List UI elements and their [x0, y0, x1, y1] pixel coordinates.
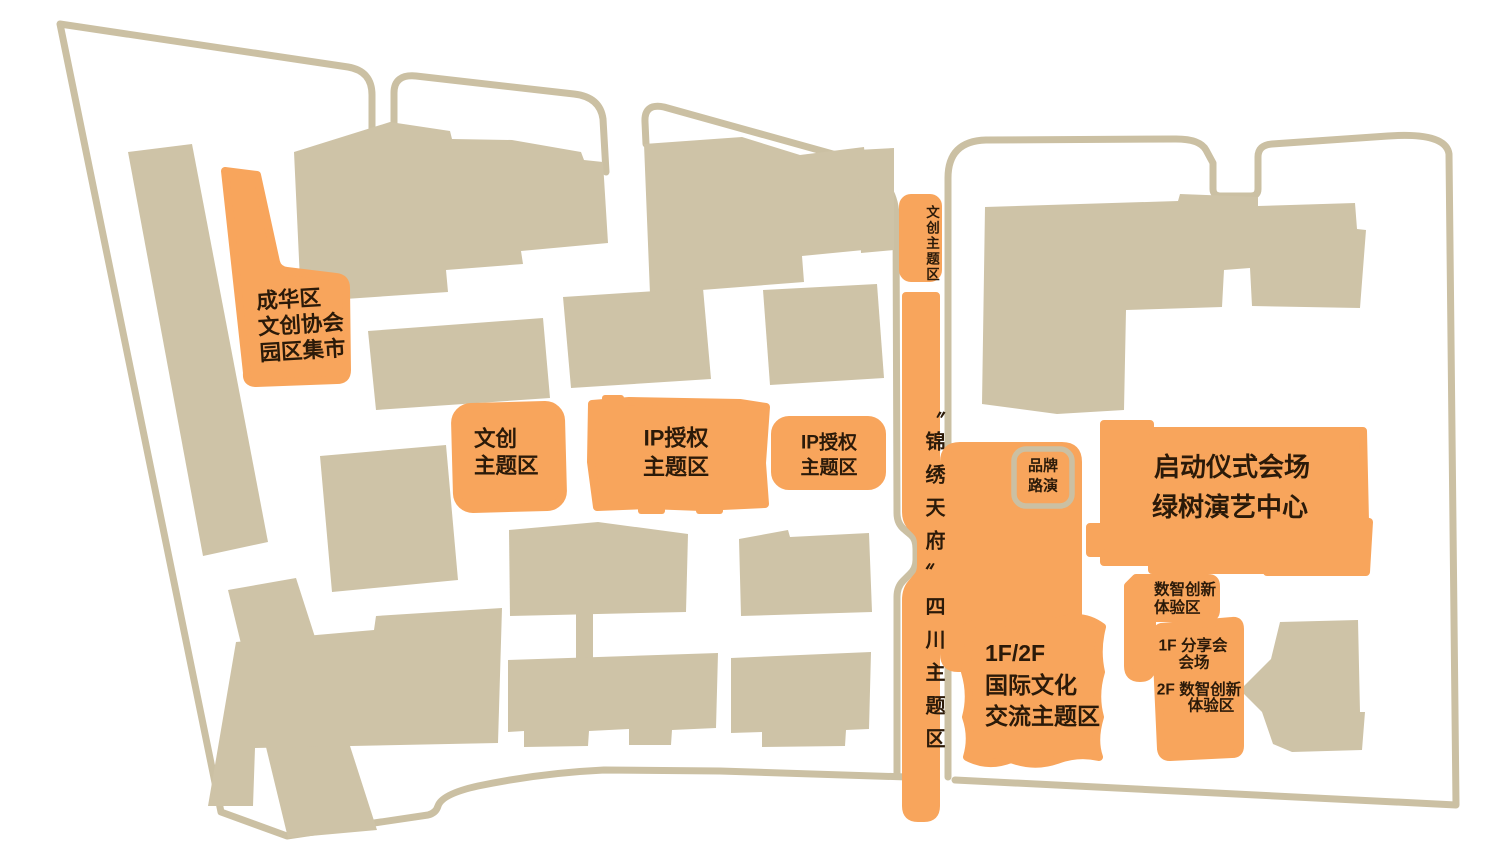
label-brand-roadshow: 品牌	[1028, 457, 1058, 475]
building	[982, 194, 1366, 414]
label-wenchuang-theme: 文创	[474, 426, 517, 451]
label-wenchuang-theme: 主题区	[474, 454, 539, 478]
label-intl-exchange: 交流主题区	[985, 703, 1100, 729]
building	[857, 148, 894, 253]
label-launch-venue: 启动仪式会场	[1154, 452, 1310, 482]
label-sharing-venue: 1F 分享会	[1159, 636, 1228, 655]
label-digital-experience: 体验区	[1154, 598, 1201, 617]
label-ip-license-small: IP授权	[801, 431, 857, 454]
building	[739, 530, 872, 616]
building	[368, 318, 550, 410]
building	[763, 284, 884, 385]
label-sharing-venue: 会场	[1178, 653, 1209, 672]
building	[320, 445, 458, 592]
building	[731, 652, 871, 747]
venue-map: 成华区 文创协会 园区集市 文创 主题区 IP授权 主题区 IP授权 主题区 品…	[0, 0, 1500, 859]
building	[576, 612, 593, 662]
building	[644, 137, 874, 294]
label-launch-venue: 绿树演艺中心	[1152, 492, 1308, 522]
label-intl-exchange: 1F/2F	[985, 640, 1045, 666]
label-brand-roadshow: 路演	[1028, 477, 1058, 495]
label-chenghua-market: 文创协会	[257, 309, 345, 339]
label-ip-license-main: 主题区	[643, 455, 709, 480]
label-digital-experience: 数智创新	[1154, 580, 1217, 599]
label-ip-license-main: IP授权	[644, 426, 710, 451]
zone-ip-license-main-tab	[602, 395, 624, 407]
zone-ip-license-main-tab	[638, 503, 665, 514]
building	[508, 653, 718, 747]
label-chenghua-market: 园区集市	[259, 335, 346, 365]
building	[563, 288, 711, 388]
zone-ip-license-main-tab	[696, 503, 723, 514]
label-intl-exchange: 国际文化	[985, 672, 1077, 698]
label-chenghua-market: 成华区	[256, 285, 322, 314]
map-canvas: 成华区 文创协会 园区集市 文创 主题区 IP授权 主题区 IP授权 主题区 品…	[0, 0, 1500, 859]
label-digital-experience-2f: 2F 数智创新	[1157, 680, 1242, 699]
building	[1240, 620, 1365, 752]
label-digital-experience-2f: 体验区	[1188, 696, 1235, 715]
label-ip-license-small: 主题区	[800, 457, 857, 479]
label-wenchuang-strip: 文创主题区	[902, 205, 938, 283]
label-jinxiu-sichuan-strip: 〝锦绣天府〞四川主题区	[899, 398, 943, 761]
building	[509, 522, 688, 616]
